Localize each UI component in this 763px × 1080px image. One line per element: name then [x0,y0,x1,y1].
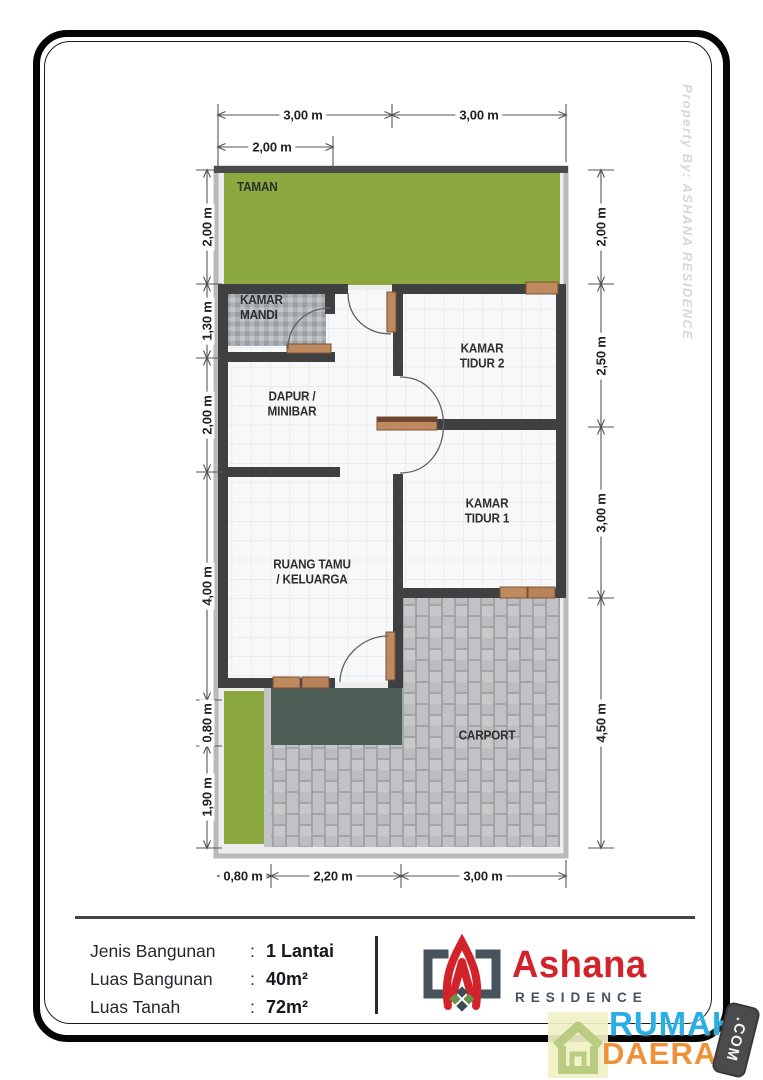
info-label: Luas Tanah [90,997,250,1018]
info-value: 40m² [266,969,308,990]
room-label-ruang-tamu: RUANG TAMU / KELUARGA [273,557,351,587]
room-label-dapur: DAPUR / MINIBAR [268,389,317,419]
dim-bottom-1: 0,80 m [219,869,266,884]
dim-left-4: 4,00 m [200,562,215,609]
ashana-logo-subtitle: RESIDENCE [515,990,648,1005]
dim-right-4: 4,50 m [594,699,609,746]
carport-paving [402,598,560,847]
room-label-kamar-mandi: KAMAR MANDI [240,293,283,323]
room-label-kamar-tidur-1: KAMAR TIDUR 1 [465,496,509,526]
dim-bottom-2: 2,20 m [309,869,356,884]
dim-top-2: 3,00 m [455,108,502,123]
info-row-luas-tanah: Luas Tanah : 72m² [90,997,334,1018]
dim-left-2: 1,30 m [200,297,215,344]
room-label-carport: CARPORT [459,729,516,744]
dim-right-2: 2,50 m [594,332,609,379]
ashana-logo-icon [414,932,510,1020]
carport-paving-lower [271,745,402,847]
info-value: 1 Lantai [266,941,334,962]
dim-top-1: 3,00 m [279,108,326,123]
info-colon: : [250,969,266,990]
room-label-taman: TAMAN [237,180,278,195]
dim-right-1: 2,00 m [594,203,609,250]
footer-vertical-divider [375,936,378,1014]
dim-left-5: 0,80 m [200,699,215,746]
info-label: Luas Bangunan [90,969,250,990]
house-icon [548,1012,608,1078]
dim-right-3: 3,00 m [594,489,609,536]
info-colon: : [250,941,266,962]
room-label-kamar-tidur-2: KAMAR TIDUR 2 [460,341,504,371]
dim-left-1: 2,00 m [200,203,215,250]
site-plot [214,166,568,856]
footer-divider-line [75,916,695,919]
garden-strip [224,691,264,844]
dim-left-3: 2,00 m [200,391,215,438]
info-colon: : [250,997,266,1018]
info-value: 72m² [266,997,308,1018]
floorplan-page: Property By: ASHANA RESIDENCE [0,0,763,1080]
dim-left-6: 1,90 m [200,773,215,820]
info-label: Jenis Bangunan [90,941,250,962]
ashana-logo-name: Ashana [512,944,647,987]
dim-bottom-3: 3,00 m [459,869,506,884]
info-row-jenis: Jenis Bangunan : 1 Lantai [90,941,334,962]
building-info: Jenis Bangunan : 1 Lantai Luas Bangunan … [90,941,334,1025]
dim-top-inner: 2,00 m [248,140,295,155]
terrace [271,688,402,745]
info-row-luas-bangunan: Luas Bangunan : 40m² [90,969,334,990]
